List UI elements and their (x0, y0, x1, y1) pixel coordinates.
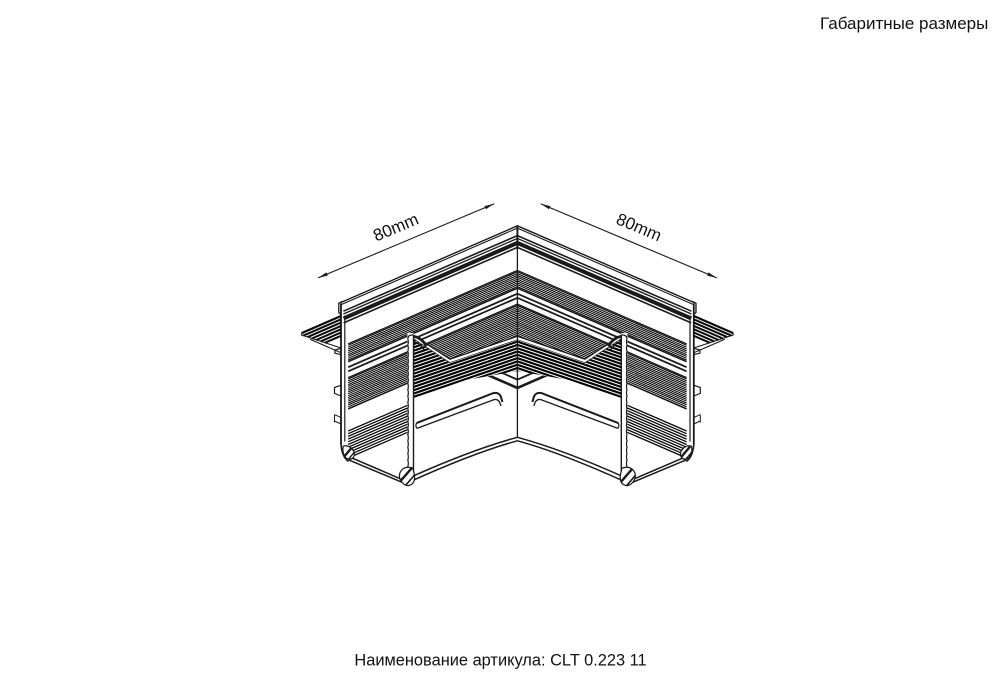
svg-text:80mm: 80mm (613, 210, 664, 246)
svg-text:Наименование артикула: CLT 0.2: Наименование артикула: CLT 0.223 11 (354, 652, 646, 670)
svg-text:80mm: 80mm (370, 210, 421, 246)
svg-text:Габаритные размеры: Габаритные размеры (820, 14, 988, 33)
